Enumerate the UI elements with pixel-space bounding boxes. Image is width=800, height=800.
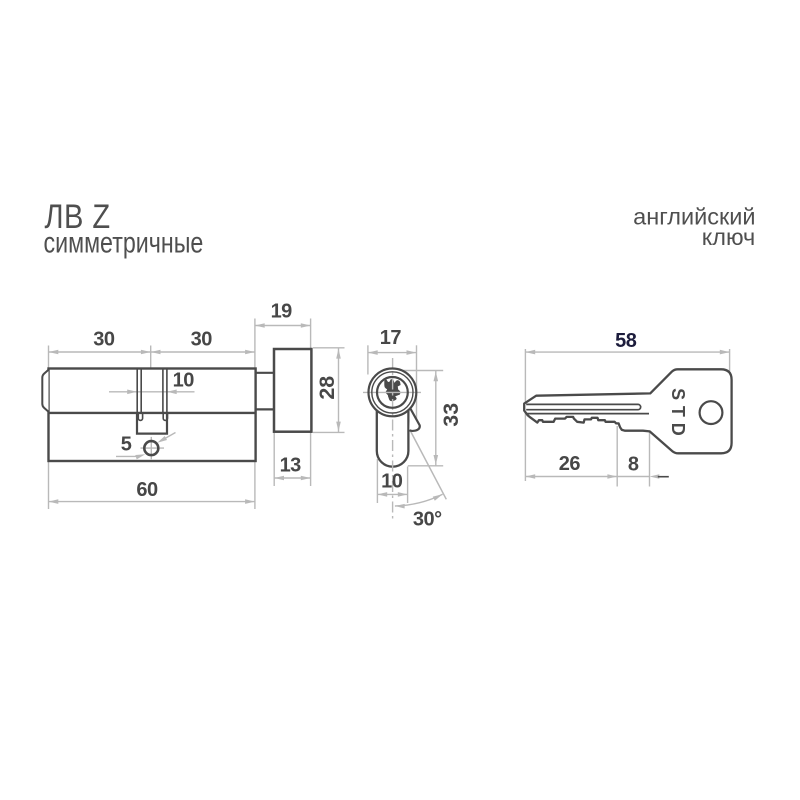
svg-text:17: 17 xyxy=(380,327,402,349)
svg-text:5: 5 xyxy=(121,434,132,456)
svg-text:28: 28 xyxy=(315,376,339,400)
svg-text:10: 10 xyxy=(381,471,403,493)
svg-text:60: 60 xyxy=(136,479,158,501)
svg-text:33: 33 xyxy=(439,403,463,427)
svg-text:STD: STD xyxy=(668,388,688,441)
svg-text:симметричные: симметричные xyxy=(44,226,204,260)
svg-text:30°: 30° xyxy=(413,509,442,531)
svg-text:8: 8 xyxy=(628,453,639,475)
svg-text:30: 30 xyxy=(93,328,115,350)
svg-text:ключ: ключ xyxy=(702,224,756,250)
svg-text:13: 13 xyxy=(280,455,302,477)
svg-text:26: 26 xyxy=(559,453,581,475)
svg-text:10: 10 xyxy=(173,369,195,391)
svg-text:19: 19 xyxy=(271,301,293,323)
svg-text:58: 58 xyxy=(615,330,637,352)
svg-text:30: 30 xyxy=(191,328,213,350)
